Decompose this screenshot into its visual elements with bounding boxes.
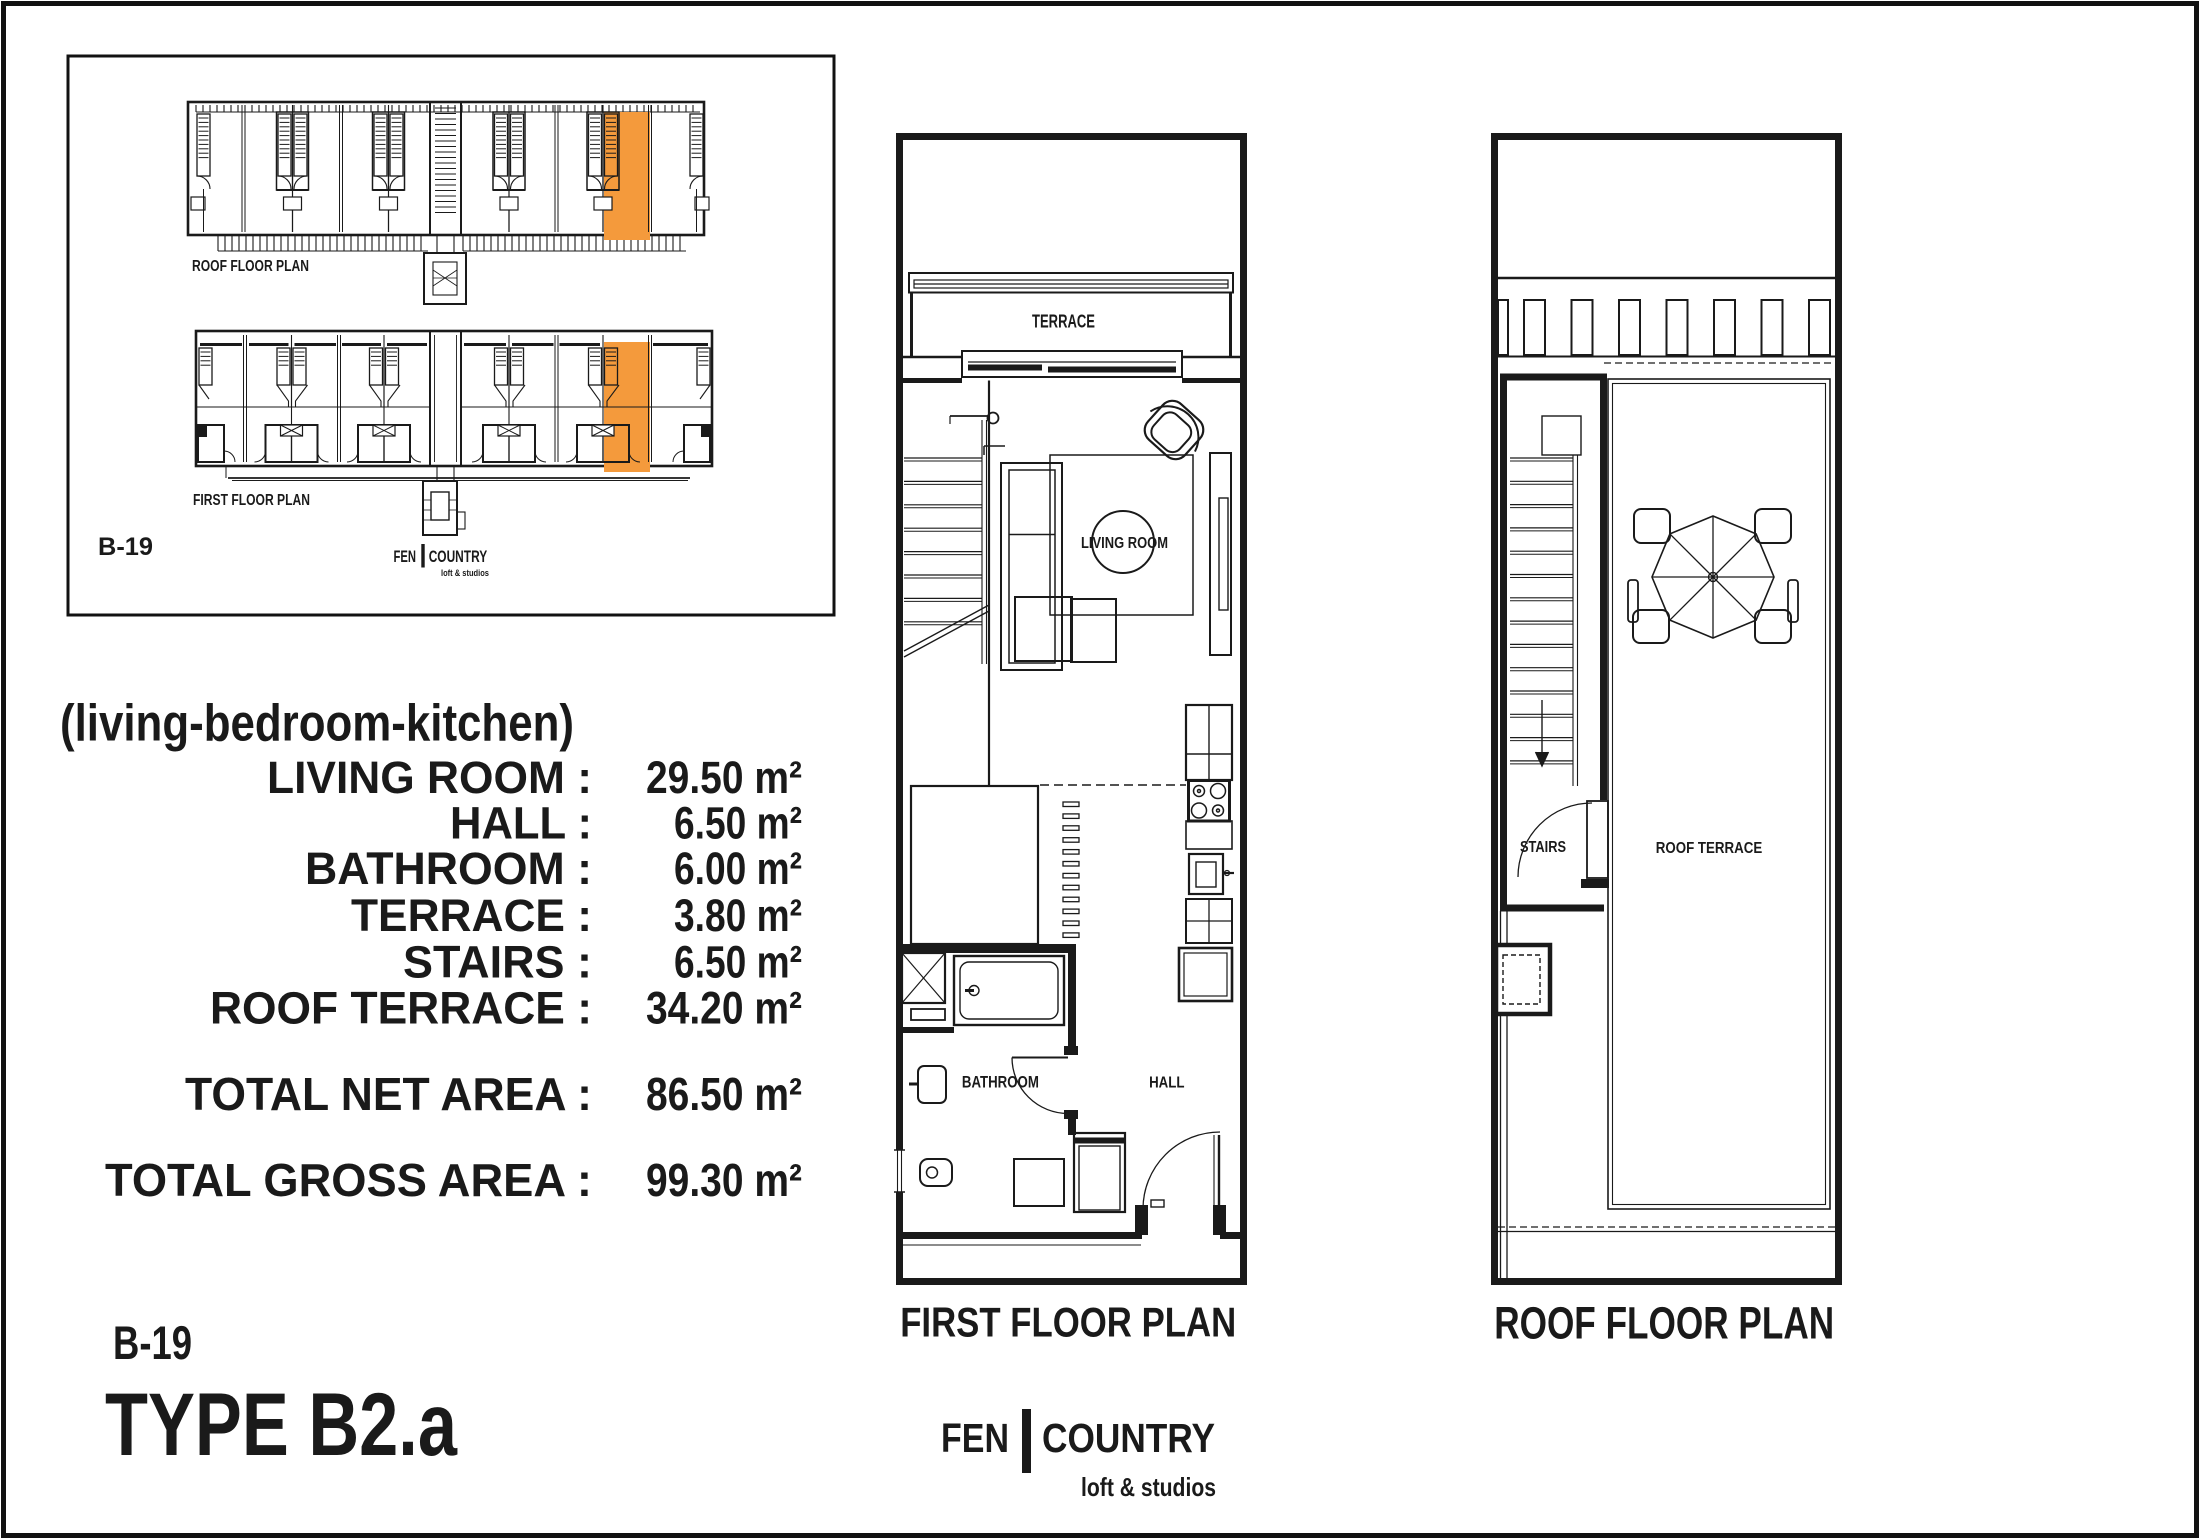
svg-text:6.50 m²: 6.50 m² <box>674 798 802 849</box>
svg-text:LIVING ROOM: LIVING ROOM <box>1081 535 1168 552</box>
svg-text:TERRACE :: TERRACE : <box>351 890 592 941</box>
svg-text:ROOF TERRACE :: ROOF TERRACE : <box>210 983 592 1034</box>
svg-text:ROOF TERRACE: ROOF TERRACE <box>1656 840 1763 857</box>
svg-text:B-19: B-19 <box>113 1316 192 1369</box>
svg-text:3.80 m²: 3.80 m² <box>674 890 802 941</box>
svg-text:34.20 m²: 34.20 m² <box>646 983 802 1034</box>
svg-text:ROOF FLOOR PLAN: ROOF FLOOR PLAN <box>1494 1298 1834 1349</box>
svg-text:6.00 m²: 6.00 m² <box>674 843 802 894</box>
svg-text:FIRST FLOOR PLAN: FIRST FLOOR PLAN <box>900 1298 1236 1345</box>
svg-text:(living-bedroom-kitchen): (living-bedroom-kitchen) <box>60 695 574 753</box>
svg-text:TYPE B2.a: TYPE B2.a <box>105 1374 458 1474</box>
svg-text:STAIRS :: STAIRS : <box>403 937 592 988</box>
svg-text:HALL: HALL <box>1149 1074 1185 1091</box>
svg-text:86.50 m²: 86.50 m² <box>646 1068 802 1120</box>
svg-text:FEN: FEN <box>394 547 417 566</box>
svg-text:TOTAL NET AREA :: TOTAL NET AREA : <box>185 1068 592 1120</box>
svg-text:TERRACE: TERRACE <box>1032 312 1095 332</box>
svg-text:B-19: B-19 <box>98 533 153 561</box>
svg-text:BATHROOM: BATHROOM <box>962 1073 1039 1091</box>
svg-text:loft & studios: loft & studios <box>441 568 489 579</box>
svg-text:LIVING ROOM :: LIVING ROOM : <box>267 752 592 803</box>
svg-text:loft & studios: loft & studios <box>1081 1472 1216 1502</box>
svg-text:TOTAL GROSS AREA :: TOTAL GROSS AREA : <box>105 1154 592 1206</box>
svg-text:STAIRS: STAIRS <box>1520 839 1566 856</box>
svg-text:6.50 m²: 6.50 m² <box>674 937 802 988</box>
svg-text:COUNTRY: COUNTRY <box>1042 1415 1215 1461</box>
svg-text:FIRST FLOOR PLAN: FIRST FLOOR PLAN <box>193 492 310 509</box>
svg-text:99.30 m²: 99.30 m² <box>646 1154 802 1206</box>
svg-text:FEN: FEN <box>941 1415 1009 1461</box>
svg-text:ROOF FLOOR PLAN: ROOF FLOOR PLAN <box>192 258 309 275</box>
svg-text:COUNTRY: COUNTRY <box>429 547 488 566</box>
svg-text:BATHROOM :: BATHROOM : <box>305 843 592 894</box>
svg-text:29.50 m²: 29.50 m² <box>646 752 802 803</box>
svg-text:HALL :: HALL : <box>450 798 592 849</box>
